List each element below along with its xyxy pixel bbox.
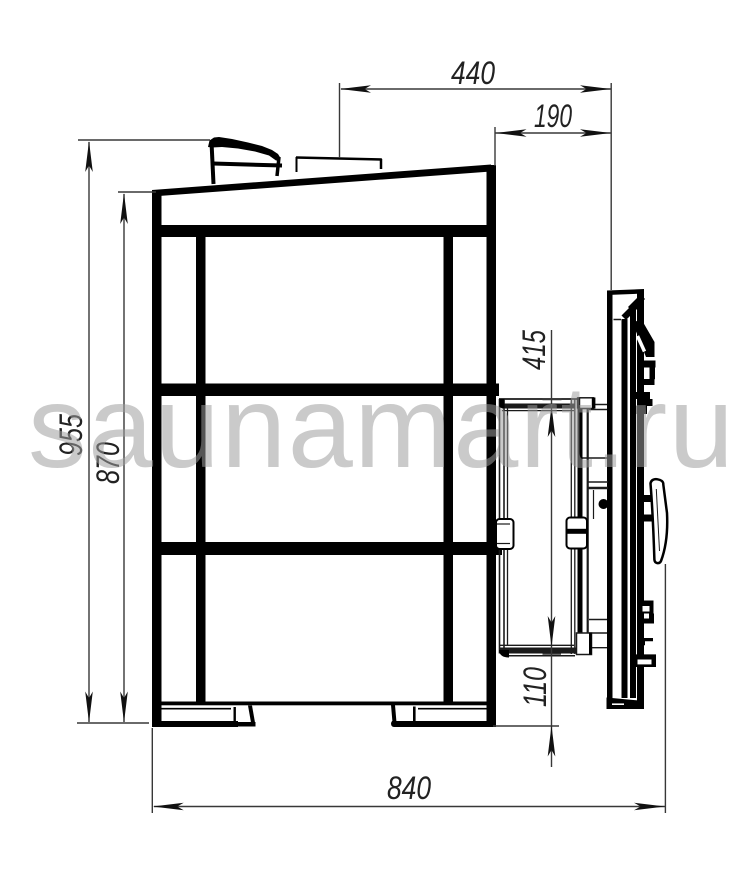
svg-text:840: 840 [387,770,431,806]
svg-text:190: 190 [534,98,572,134]
svg-text:110: 110 [517,667,553,707]
svg-text:440: 440 [451,55,495,91]
svg-text:saunamart.ru: saunamart.ru [28,361,735,492]
